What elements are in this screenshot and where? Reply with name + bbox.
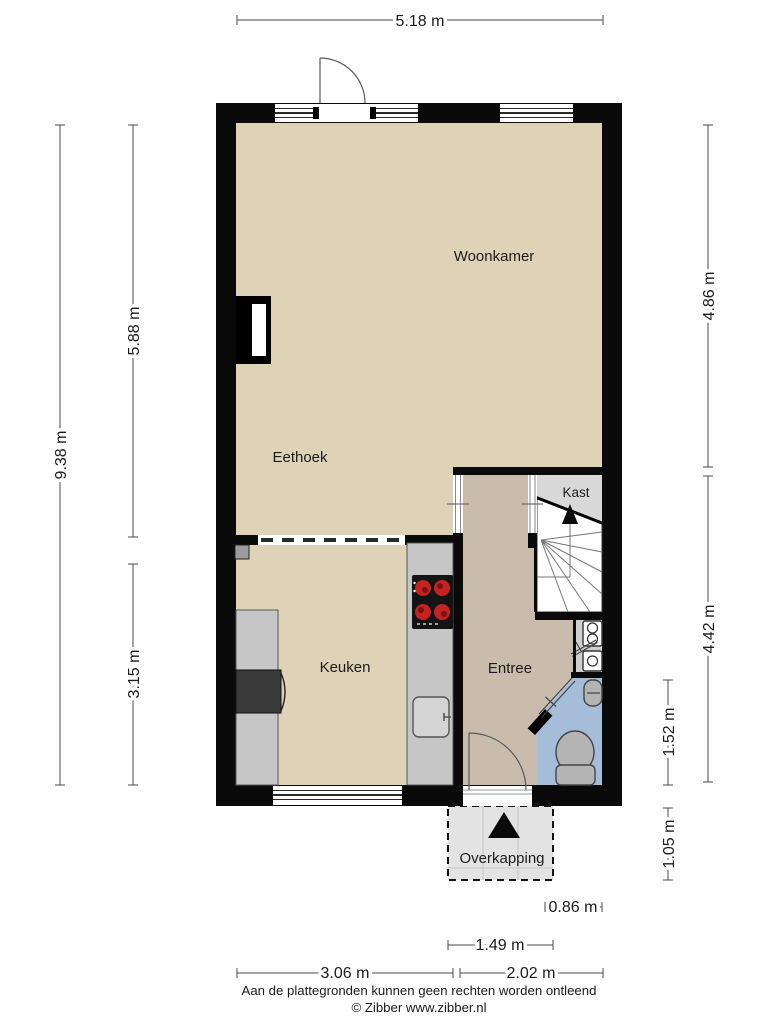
copyright-text: © Zibber www.zibber.nl (351, 1000, 486, 1015)
dim-canopy-width: 1.49 m (476, 937, 525, 954)
dim-bottom-right: 2.02 m (507, 965, 556, 982)
stairs-side-wall (534, 548, 537, 612)
toilet-tank (556, 765, 595, 785)
door-jamb (370, 107, 376, 119)
dim-left-upper: 5.88 m (126, 307, 143, 356)
meterkast-side-wall (573, 618, 576, 674)
front-door-opening (463, 786, 532, 806)
wall-duct (235, 545, 249, 559)
stove-control-dot (413, 582, 415, 584)
burner-center (418, 607, 424, 613)
dim-canopy-height: 1.05 m (661, 820, 678, 869)
overkapping-canopy (448, 806, 553, 880)
dim-toilet-height: 1.52 m (661, 708, 678, 757)
back-door-opening (313, 104, 376, 122)
room-label-overkapping: Overkapping (459, 850, 544, 867)
room-label-keuken: Keuken (320, 659, 371, 676)
meter-cupboard (571, 618, 602, 674)
dim-bottom-left: 3.06 m (321, 965, 370, 982)
room-label-woonkamer: Woonkamer (454, 248, 535, 265)
chimney-recess (236, 296, 271, 364)
dim-canopy-offset: 0.86 m (549, 899, 598, 916)
dim-left-total: 9.38 m (53, 431, 70, 480)
stove-control-dot (413, 590, 415, 592)
dim-right-upper: 4.86 m (701, 272, 718, 321)
dim-top-width: 5.18 m (396, 13, 445, 30)
stove (412, 575, 453, 629)
floorplan-page: Woonkamer Eethoek Keuken Entree Kast Ove… (0, 0, 768, 1024)
burner-center (422, 587, 428, 593)
meter-symbol-icon (588, 656, 598, 666)
wall-woonkamer-entree (453, 467, 602, 475)
room-label-kast: Kast (562, 485, 589, 500)
burner-center (437, 583, 443, 589)
sink (413, 697, 451, 737)
burner-center (441, 611, 447, 617)
room-label-entree: Entree (488, 660, 532, 677)
disclaimer-text: Aan de plattegronden kunnen geen rechten… (242, 983, 597, 998)
wall-stub-stairs (528, 533, 537, 548)
overkapping-area (448, 806, 553, 880)
dim-left-lower: 3.15 m (126, 650, 143, 699)
floor-plan: Woonkamer Eethoek Keuken Entree Kast Ove… (0, 0, 768, 1024)
built-in-appliance (236, 670, 281, 713)
chimney-notch (251, 303, 267, 357)
back-door-swing-arc (320, 58, 365, 103)
dim-right-lower: 4.42 m (701, 605, 718, 654)
wall-below-stairs (535, 612, 602, 620)
door-jamb (313, 107, 319, 119)
room-label-eethoek: Eethoek (272, 449, 328, 466)
meter-symbol-icon (588, 623, 598, 633)
wall-meterkast-toilet (571, 672, 602, 678)
